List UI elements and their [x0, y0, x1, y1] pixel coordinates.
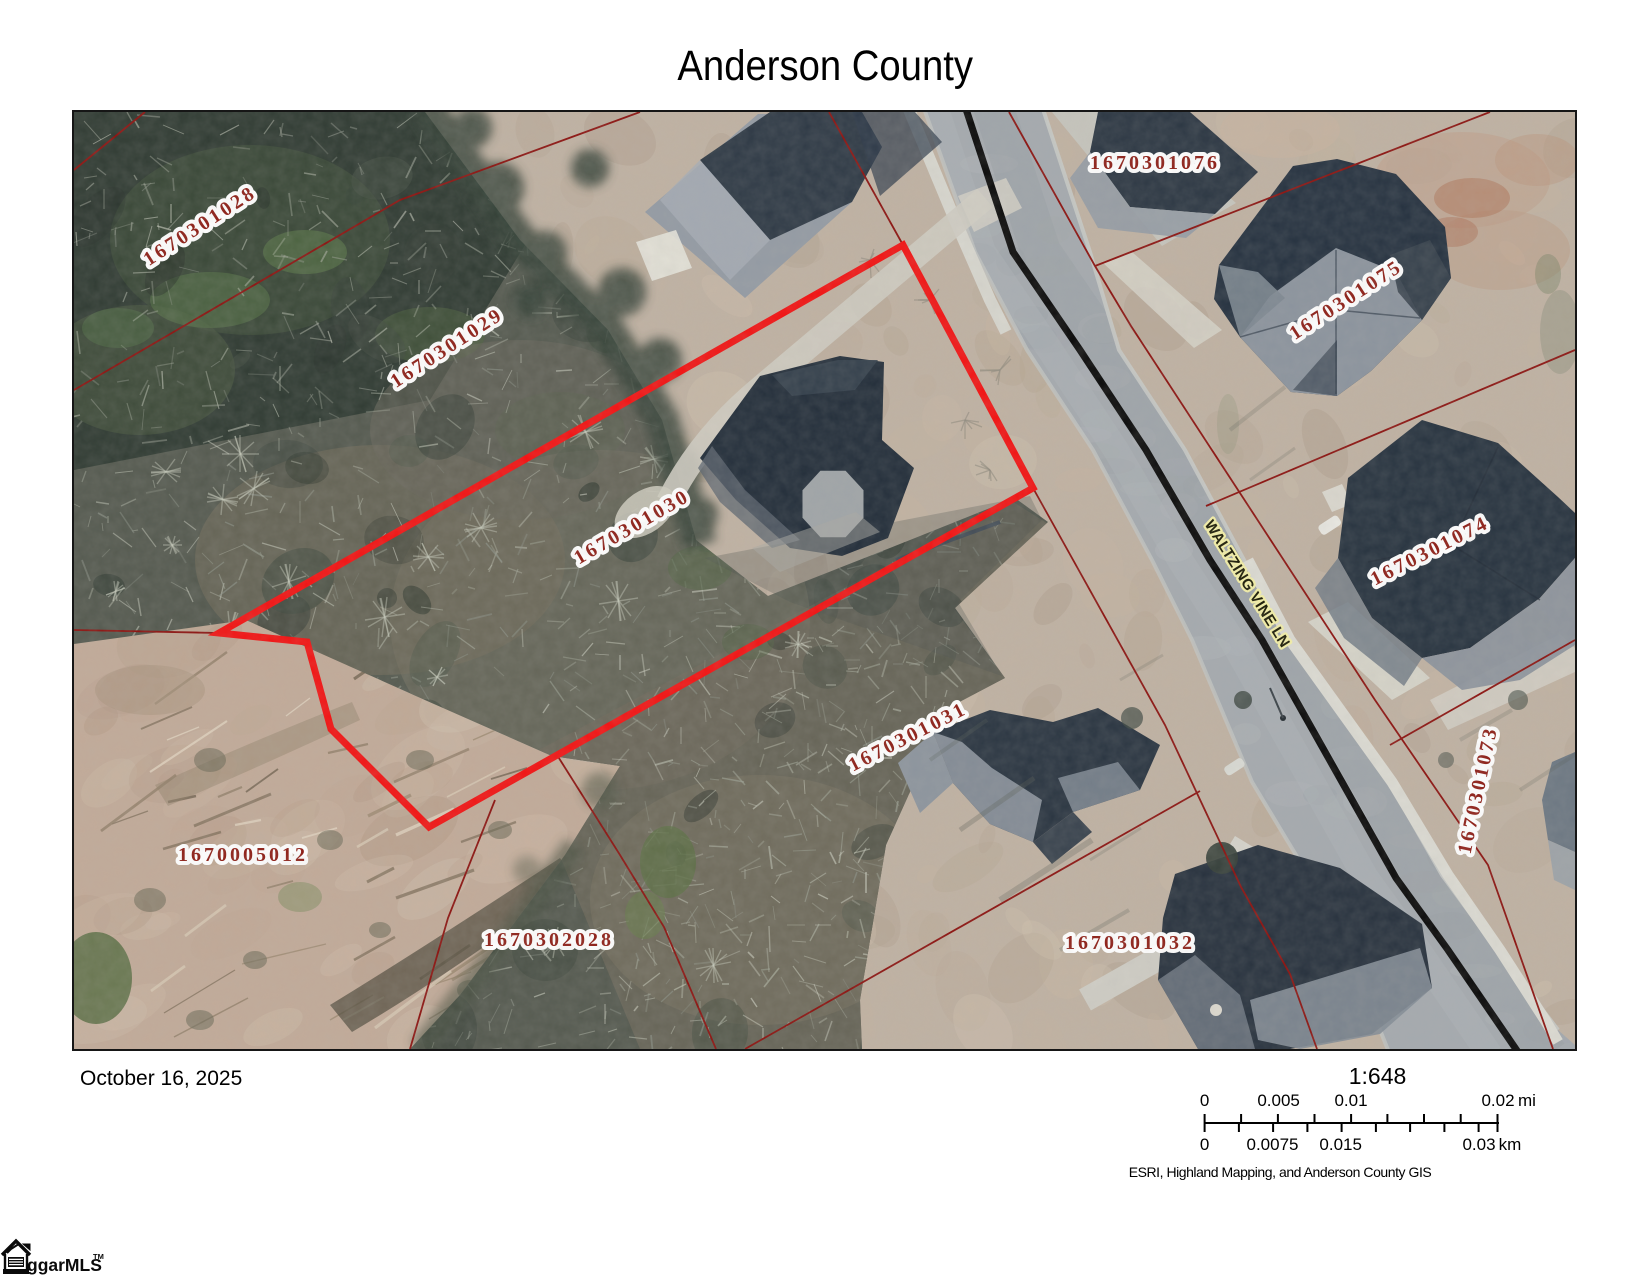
- svg-text:0.01: 0.01: [1334, 1091, 1367, 1110]
- svg-text:0.015: 0.015: [1319, 1135, 1362, 1154]
- svg-text:0: 0: [1200, 1135, 1209, 1154]
- svg-text:km: km: [1499, 1135, 1522, 1154]
- svg-text:0.0075: 0.0075: [1247, 1135, 1299, 1154]
- svg-text:0.03: 0.03: [1462, 1135, 1495, 1154]
- svg-text:0.02: 0.02: [1481, 1091, 1514, 1110]
- svg-text:0.005: 0.005: [1257, 1091, 1300, 1110]
- svg-text:ggarMLS: ggarMLS: [27, 1255, 102, 1275]
- svg-text:TM: TM: [93, 1252, 104, 1261]
- svg-text:0: 0: [1200, 1091, 1209, 1110]
- svg-text:mi: mi: [1518, 1091, 1536, 1110]
